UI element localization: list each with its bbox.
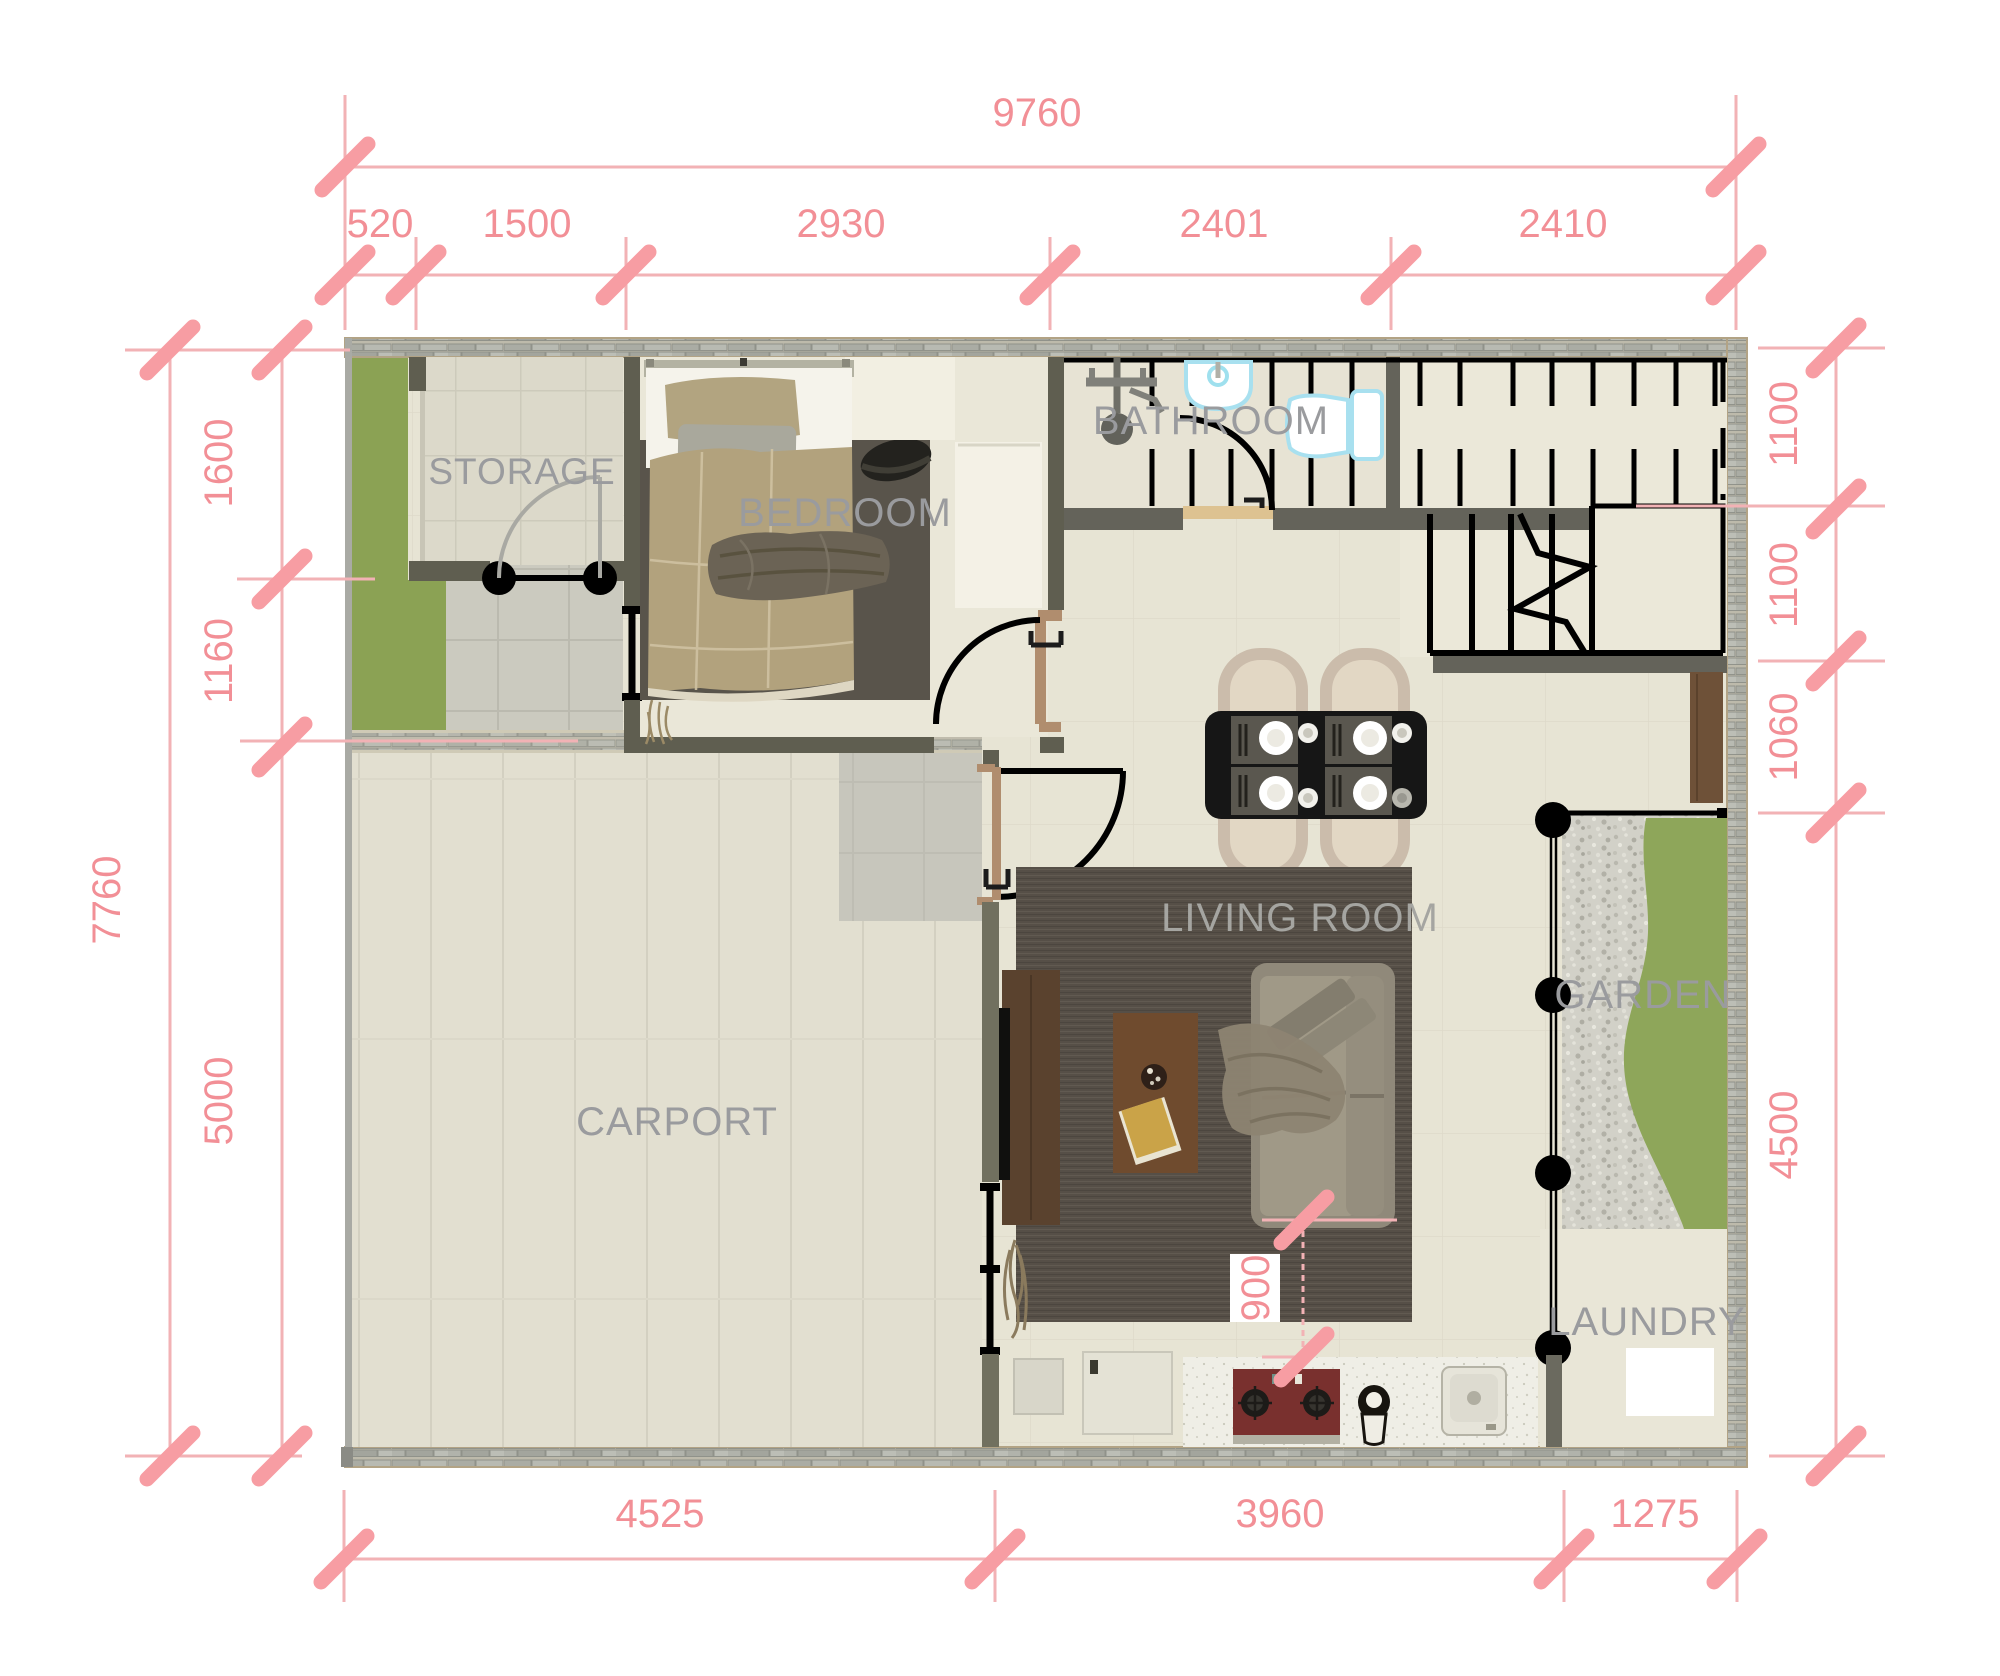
svg-text:3960: 3960 <box>1236 1492 1325 1536</box>
svg-text:4500: 4500 <box>1762 1091 1806 1180</box>
svg-text:LIVING ROOM: LIVING ROOM <box>1161 896 1439 940</box>
svg-text:5000: 5000 <box>197 1057 241 1146</box>
svg-text:7760: 7760 <box>85 856 129 945</box>
svg-text:1100: 1100 <box>1762 381 1806 467</box>
svg-text:1160: 1160 <box>197 618 241 704</box>
svg-text:9760: 9760 <box>993 91 1082 135</box>
svg-text:520: 520 <box>347 202 414 246</box>
svg-text:2410: 2410 <box>1519 202 1608 246</box>
svg-text:CARPORT: CARPORT <box>576 1100 778 1144</box>
svg-text:BEDROOM: BEDROOM <box>738 491 952 535</box>
svg-text:1275: 1275 <box>1611 1492 1700 1536</box>
svg-text:2930: 2930 <box>797 202 886 246</box>
svg-text:2401: 2401 <box>1180 202 1269 246</box>
svg-text:BATHROOM: BATHROOM <box>1093 399 1329 443</box>
svg-text:1060: 1060 <box>1762 693 1806 782</box>
svg-text:1500: 1500 <box>483 202 572 246</box>
svg-text:GARDEN: GARDEN <box>1554 973 1731 1017</box>
svg-text:900: 900 <box>1234 1255 1278 1322</box>
svg-text:4525: 4525 <box>616 1492 705 1536</box>
svg-text:1100: 1100 <box>1762 542 1806 628</box>
svg-text:STORAGE: STORAGE <box>428 451 615 492</box>
svg-text:LAUNDRY: LAUNDRY <box>1548 1300 1745 1344</box>
svg-text:1600: 1600 <box>197 419 241 508</box>
